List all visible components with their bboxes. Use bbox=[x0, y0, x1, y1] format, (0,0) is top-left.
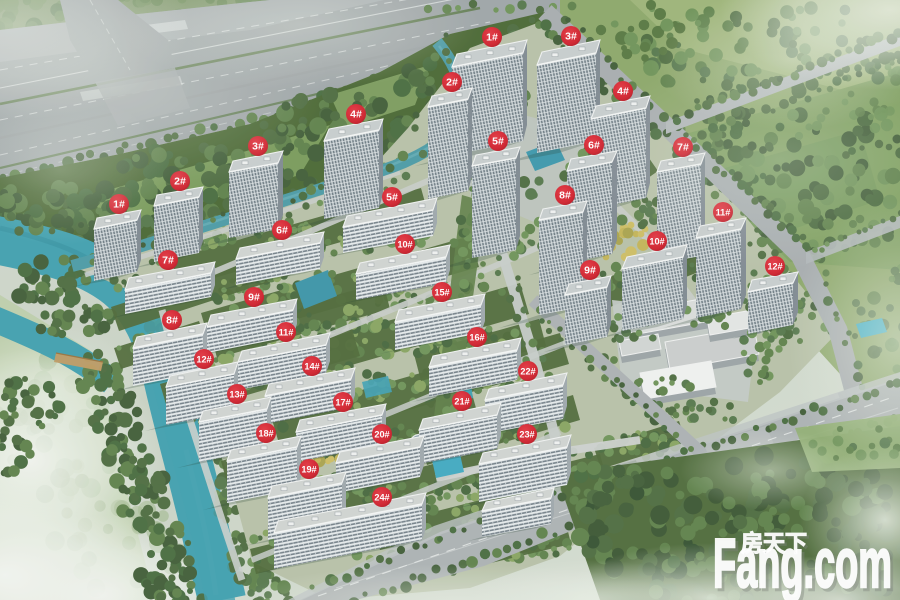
svg-text:Fang.com: Fang.com bbox=[713, 524, 892, 600]
